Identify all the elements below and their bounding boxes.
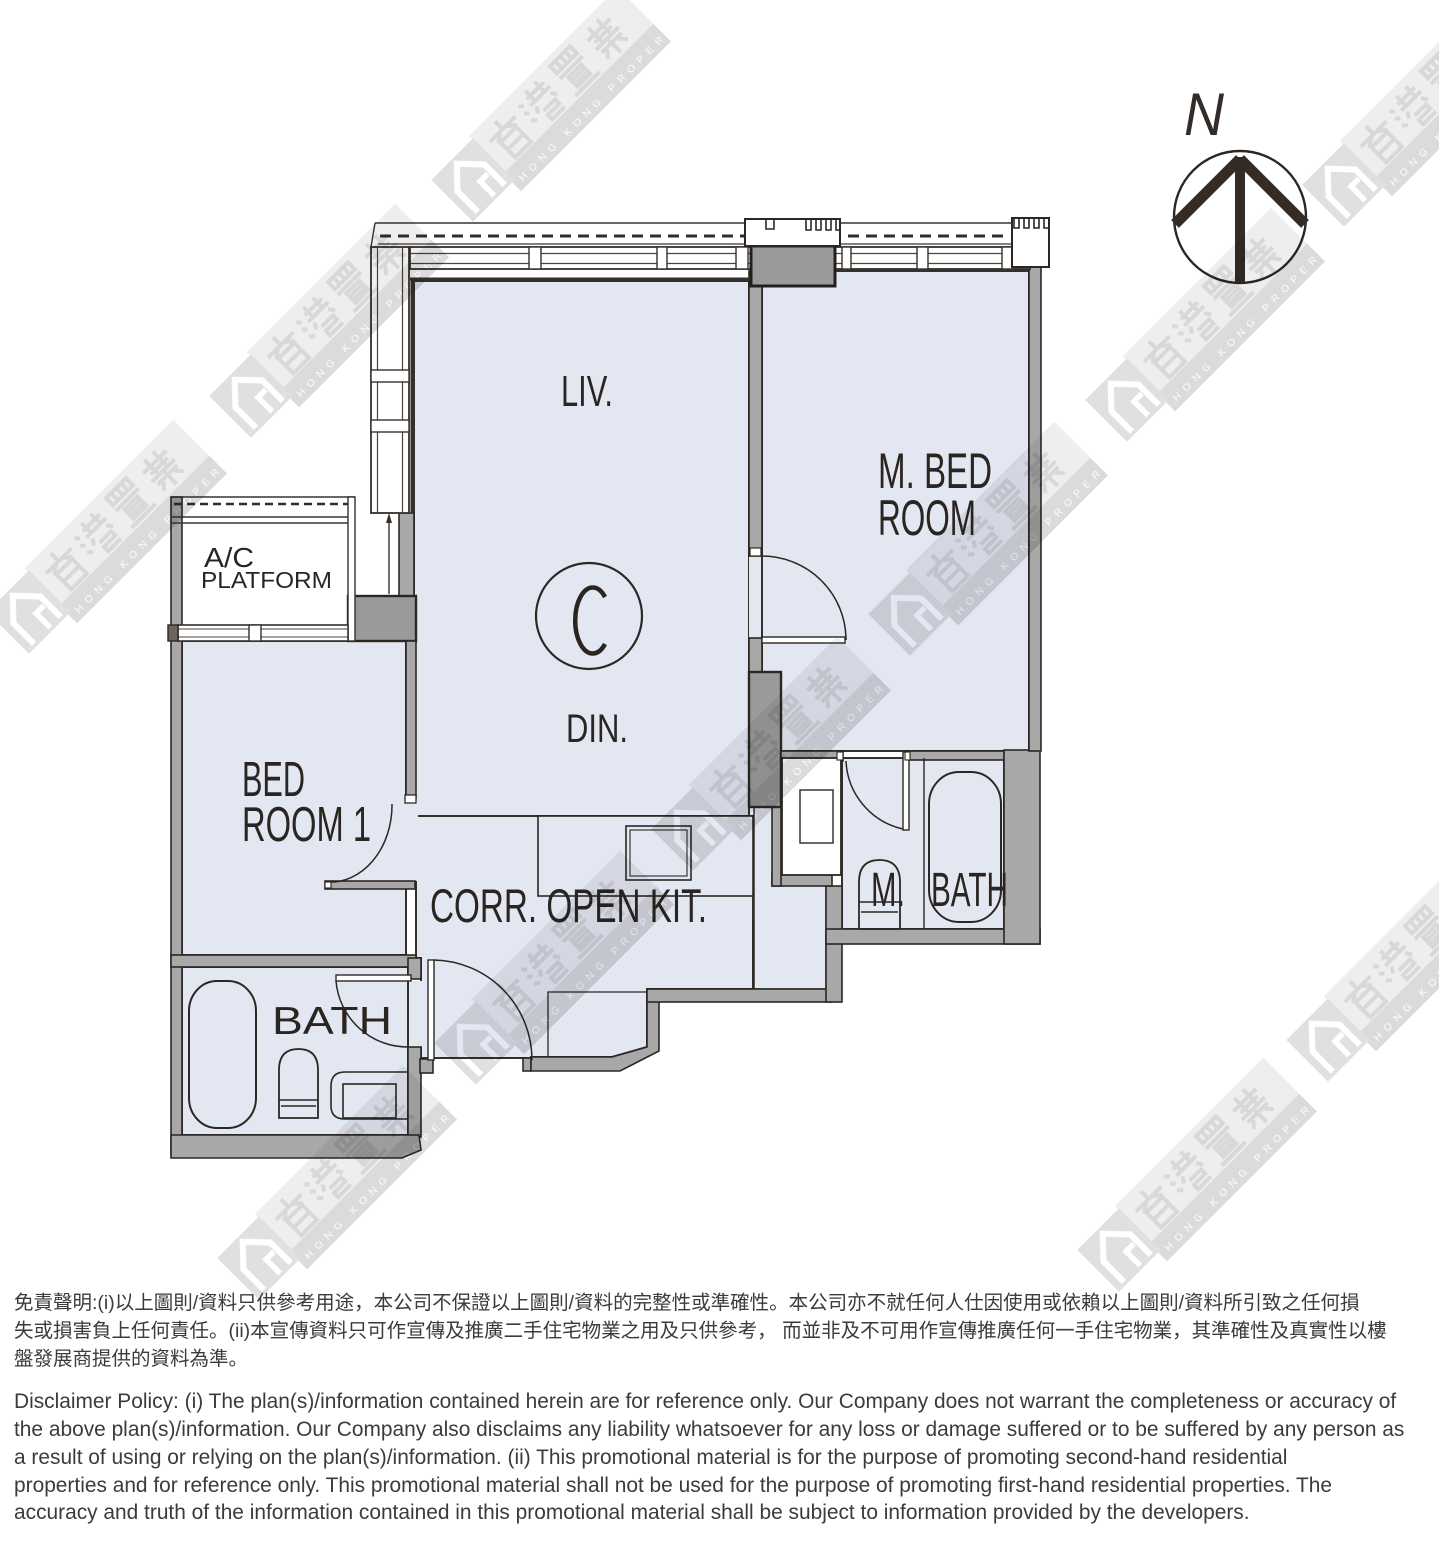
svg-text:免責聲明:(i)以上圖則/資料只供參考用途，本公司不保證以上: 免責聲明:(i)以上圖則/資料只供參考用途，本公司不保證以上圖則/資料的完整性或… xyxy=(14,1292,1360,1314)
svg-text:Disclaimer Policy: (i) The pla: Disclaimer Policy: (i) The plan(s)/infor… xyxy=(14,1390,1396,1413)
svg-text:ROOM 1: ROOM 1 xyxy=(242,798,371,852)
svg-text:BATH: BATH xyxy=(272,1000,392,1043)
svg-text:the above plan(s)/information.: the above plan(s)/information. Our Compa… xyxy=(14,1418,1404,1441)
svg-text:properties and for reference o: properties and for reference only. This … xyxy=(14,1474,1332,1497)
svg-text:PLATFORM: PLATFORM xyxy=(201,567,332,593)
svg-text:LIV.: LIV. xyxy=(561,367,613,416)
svg-text:DIN.: DIN. xyxy=(566,707,628,751)
svg-text:a result of using or relying o: a result of using or relying on the plan… xyxy=(14,1446,1287,1469)
svg-text:盤發展商提供的資料為準。: 盤發展商提供的資料為準。 xyxy=(14,1348,248,1370)
svg-text:accuracy and truth of the info: accuracy and truth of the information co… xyxy=(14,1501,1250,1524)
svg-text:N: N xyxy=(1184,81,1225,148)
svg-text:失或損害負上任何責任。(ii)本宣傳資料只可作宣傳及推廣二手: 失或損害負上任何責任。(ii)本宣傳資料只可作宣傳及推廣二手住宅物業之用及只供參… xyxy=(14,1320,1387,1342)
svg-text:M.: M. xyxy=(871,864,905,917)
svg-text:BATH: BATH xyxy=(931,864,1008,917)
